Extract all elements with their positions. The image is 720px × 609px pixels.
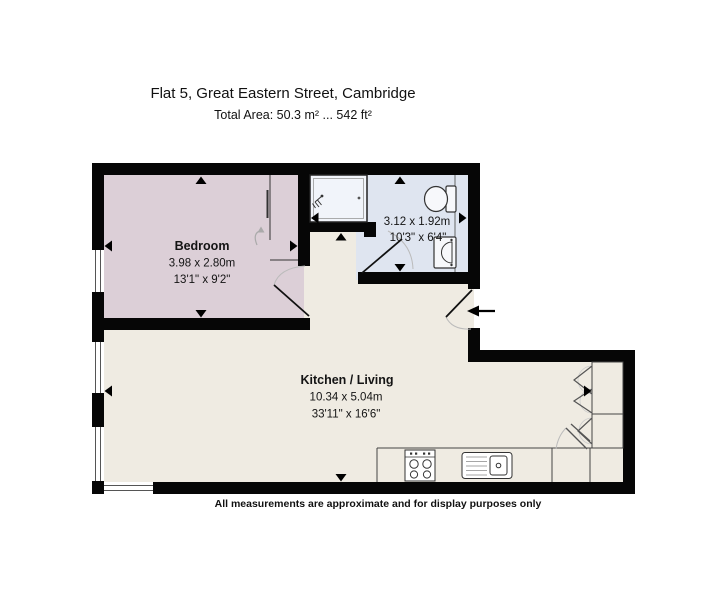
hob-icon (405, 450, 435, 481)
closet-tall (592, 362, 623, 414)
bedroom-size-metric: 3.98 x 2.80m (169, 258, 235, 270)
wall-extension-top (468, 350, 635, 362)
wall-bedroom-right (298, 163, 310, 266)
window-living-bottom (104, 482, 153, 494)
bathroom-size-metric: 3.12 x 1.92m (384, 216, 450, 228)
toilet-icon (425, 186, 457, 212)
wall-entry-upper (468, 163, 480, 289)
floor-plan: Bedroom 3.98 x 2.80m 13'1" x 9'2" 3.12 x… (0, 0, 720, 609)
wall-bottom (92, 482, 635, 494)
page: { "header": { "title": "Flat 5, Great Ea… (0, 0, 720, 609)
bedroom-label: Bedroom (175, 239, 230, 253)
closet-small (592, 414, 623, 448)
wall-shower-stub (364, 222, 376, 237)
wall-top (92, 163, 480, 175)
wall-far-right (623, 350, 635, 494)
bedroom-size-imperial: 13'1" x 9'2" (174, 274, 231, 286)
window-living-lower (92, 427, 104, 481)
window-living-upper (92, 342, 104, 393)
wall-bathroom-bottom (358, 272, 468, 284)
window-bedroom (92, 250, 104, 292)
bathroom-size-imperial: 10'3" x 6'4" (390, 232, 447, 244)
wall-bedroom-bottom (92, 318, 310, 330)
kitchen-living-size-metric: 10.34 x 5.04m (310, 392, 383, 404)
kitchen-living-size-imperial: 33'11" x 16'6" (312, 409, 381, 421)
shower-icon (310, 175, 367, 222)
kitchen-sink-icon (462, 453, 512, 479)
kitchen-living-label: Kitchen / Living (300, 373, 393, 387)
